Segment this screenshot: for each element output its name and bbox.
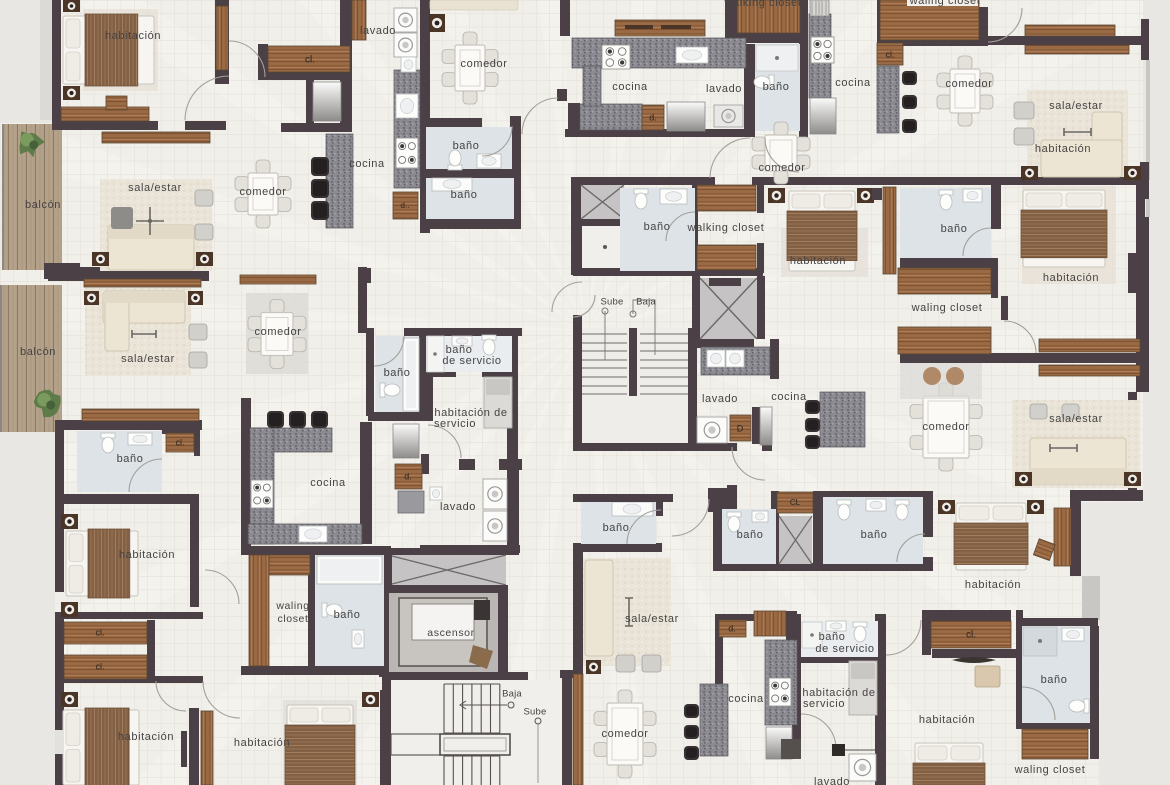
svg-text:baño: baño: [384, 367, 411, 379]
svg-text:balcón: balcón: [25, 199, 61, 211]
svg-text:walking closet: walking closet: [687, 222, 765, 234]
svg-text:lavado: lavado: [360, 25, 396, 37]
svg-text:baño: baño: [334, 609, 361, 621]
svg-text:servicio: servicio: [803, 698, 845, 710]
svg-text:habitación: habitación: [1035, 143, 1091, 155]
svg-text:walking closet: walking closet: [724, 0, 802, 9]
svg-text:habitación: habitación: [119, 549, 175, 561]
svg-text:cocina: cocina: [835, 77, 871, 89]
svg-text:Sube: Sube: [601, 297, 624, 308]
svg-text:balcón: balcón: [20, 346, 56, 358]
svg-text:habitación: habitación: [234, 737, 290, 749]
svg-text:Baja: Baja: [502, 689, 522, 700]
svg-text:habitación: habitación: [965, 579, 1021, 591]
svg-text:cocina: cocina: [310, 477, 346, 489]
svg-text:d.: d.: [404, 471, 412, 481]
svg-text:comedor: comedor: [240, 186, 287, 198]
svg-text:d.: d.: [649, 112, 657, 122]
svg-text:baño: baño: [737, 529, 764, 541]
svg-text:waling: waling: [275, 600, 309, 612]
svg-text:comedor: comedor: [255, 326, 302, 338]
svg-text:sala/estar: sala/estar: [1049, 100, 1103, 112]
svg-text:baño: baño: [1041, 674, 1068, 686]
svg-text:de servicio: de servicio: [815, 643, 874, 655]
svg-text:ascensor: ascensor: [427, 627, 474, 639]
svg-text:comedor: comedor: [602, 728, 649, 740]
svg-text:lavado: lavado: [440, 501, 476, 513]
svg-text:Baja: Baja: [636, 297, 656, 308]
svg-text:habitación: habitación: [105, 30, 161, 42]
svg-text:sala/estar: sala/estar: [121, 353, 175, 365]
svg-text:lavado: lavado: [706, 83, 742, 95]
svg-text:cl.: cl.: [96, 627, 105, 637]
svg-text:habitación: habitación: [118, 731, 174, 743]
svg-text:closet: closet: [277, 613, 308, 625]
svg-text:D: D: [737, 423, 744, 433]
svg-text:waling closet: waling closet: [909, 0, 981, 7]
svg-text:baño: baño: [453, 140, 480, 152]
svg-text:cl.: cl.: [966, 630, 976, 641]
svg-text:baño: baño: [819, 631, 846, 643]
svg-text:servicio: servicio: [434, 418, 476, 430]
svg-text:Sube: Sube: [524, 707, 547, 718]
svg-text:cl.: cl.: [886, 49, 895, 59]
svg-text:cl.: cl.: [305, 55, 315, 66]
svg-text:de servicio: de servicio: [442, 355, 501, 367]
svg-text:baño: baño: [603, 522, 630, 534]
svg-text:sala/estar: sala/estar: [625, 613, 679, 625]
svg-text:habitación: habitación: [1043, 272, 1099, 284]
svg-text:CL: CL: [790, 498, 801, 507]
svg-text:cocina: cocina: [612, 81, 648, 93]
svg-text:cl.: cl.: [176, 437, 185, 447]
svg-text:comedor: comedor: [923, 421, 970, 433]
svg-text:habitación: habitación: [790, 255, 846, 267]
svg-text:baño: baño: [644, 221, 671, 233]
svg-text:d.: d.: [728, 623, 736, 633]
svg-text:baño: baño: [117, 453, 144, 465]
svg-text:lavado: lavado: [702, 393, 738, 405]
svg-text:sala/estar: sala/estar: [128, 182, 182, 194]
svg-text:cl.: cl.: [96, 661, 105, 671]
svg-text:sala/estar: sala/estar: [1049, 413, 1103, 425]
svg-text:cocina: cocina: [771, 391, 807, 403]
svg-text:baño: baño: [763, 81, 790, 93]
svg-text:comedor: comedor: [461, 58, 508, 70]
svg-text:cocina: cocina: [349, 158, 385, 170]
svg-text:lavado: lavado: [814, 776, 850, 785]
svg-text:habitación: habitación: [919, 714, 975, 726]
svg-text:comedor: comedor: [759, 162, 806, 174]
svg-text:baño: baño: [861, 529, 888, 541]
svg-text:d..: d..: [401, 201, 410, 210]
svg-text:baño: baño: [451, 189, 478, 201]
svg-text:baño: baño: [941, 223, 968, 235]
svg-text:waling closet: waling closet: [1014, 764, 1086, 776]
svg-text:cocina: cocina: [728, 693, 764, 705]
svg-text:comedor: comedor: [946, 78, 993, 90]
svg-text:waling closet: waling closet: [911, 302, 983, 314]
